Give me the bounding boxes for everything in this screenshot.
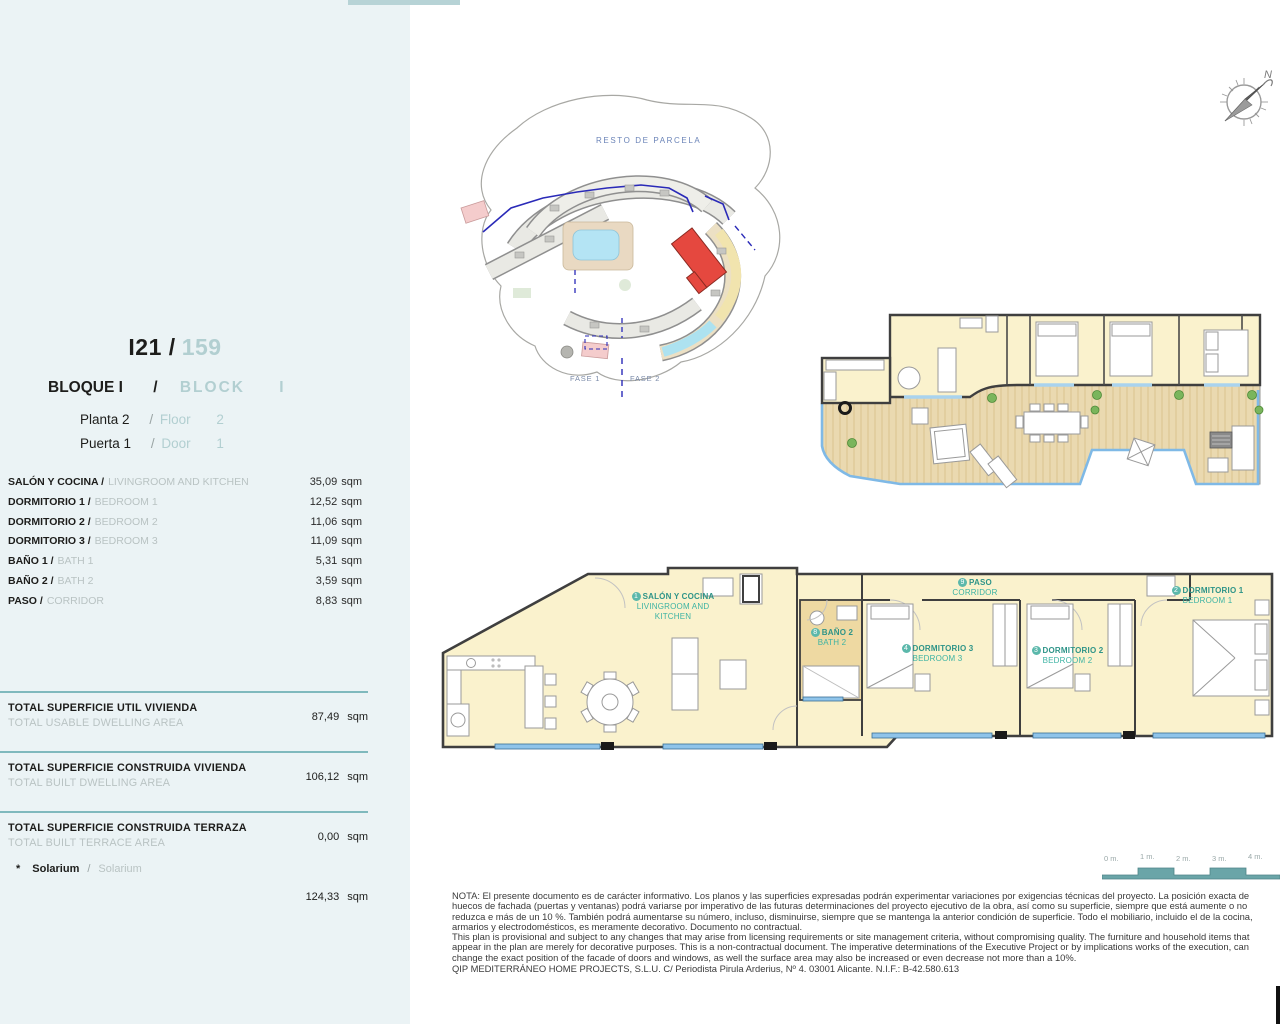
planta-es: Planta 2 xyxy=(80,412,130,427)
block-es: BLOQUE I xyxy=(48,379,123,396)
room-area: 5,31 xyxy=(297,555,337,567)
puerta-es: Puerta 1 xyxy=(80,436,131,451)
room-number-badge: 2 xyxy=(1172,586,1181,595)
scale-bar xyxy=(1102,866,1280,880)
company-info: QIP MEDITERRÁNEO HOME PROJECTS, S.L.U. C… xyxy=(452,964,1280,974)
fase1-label: FASE 1 xyxy=(570,374,600,383)
upper-floor-plan xyxy=(812,300,1272,500)
planta-number: 2 xyxy=(216,412,224,427)
room-unit: sqm xyxy=(341,476,362,488)
block-en-number: I xyxy=(279,379,283,396)
room-es: BAÑO 1 / xyxy=(8,555,54,567)
room-area: 3,59 xyxy=(297,575,337,587)
solarium-slash: / xyxy=(87,863,90,875)
puerta-number: 1 xyxy=(216,436,224,451)
total-area: 0,00 xyxy=(293,831,339,843)
room-unit: sqm xyxy=(341,535,362,547)
unit-code: I21 / xyxy=(128,334,175,360)
resto-de-parcela-label: RESTO DE PARCELA xyxy=(596,136,701,145)
total-unit: sqm xyxy=(347,771,368,783)
total-unit: sqm xyxy=(347,711,368,723)
scale-2m: 2 m. xyxy=(1176,854,1191,863)
room-area-list: SALÓN Y COCINA / LIVINGROOM AND KITCHEN … xyxy=(8,476,362,615)
room-es: DORMITORIO 1 / xyxy=(8,496,91,508)
total-built-area: TOTAL SUPERFICIE CONSTRUIDA VIVIENDA TOT… xyxy=(0,751,368,811)
room-number-badge: 9 xyxy=(958,578,967,587)
room-row-dorm1: DORMITORIO 1 / BEDROOM 1 12,52 sqm xyxy=(8,496,362,516)
scale-0m: 0 m. xyxy=(1104,854,1119,863)
room-row-paso: PASO / CORRIDOR 8,83 sqm xyxy=(8,595,362,615)
room-es: PASO / xyxy=(8,595,43,607)
unit-title: I21 /159 xyxy=(0,334,350,361)
room-row-dorm3: DORMITORIO 3 / BEDROOM 3 11,09 sqm xyxy=(8,535,362,555)
puerta-en: Door xyxy=(161,436,190,451)
room-number-badge: 4 xyxy=(902,644,911,653)
room-row-bath2: BAÑO 2 / BATH 2 3,59 sqm xyxy=(8,575,362,595)
unit-number: 159 xyxy=(182,334,222,360)
room-unit: sqm xyxy=(341,516,362,528)
room-es: BAÑO 2 / xyxy=(8,575,54,587)
total-area: 87,49 xyxy=(293,711,339,723)
label-salon: 1SALÓN Y COCINA LIVINGROOM AND KITCHEN xyxy=(608,592,738,622)
total-area: 106,12 xyxy=(293,771,339,783)
scale-3m: 3 m. xyxy=(1212,854,1227,863)
room-unit: sqm xyxy=(341,496,362,508)
total-terrace-area: TOTAL SUPERFICIE CONSTRUIDA TERRAZA TOTA… xyxy=(0,811,368,918)
room-area: 35,09 xyxy=(297,476,337,488)
room-es: SALÓN Y COCINA / xyxy=(8,476,104,488)
room-en: CORRIDOR xyxy=(47,595,297,607)
label-dorm3: 4DORMITORIO 3 BEDROOM 3 xyxy=(875,644,1000,664)
solarium-en: Solarium xyxy=(98,863,141,875)
room-unit: sqm xyxy=(341,575,362,587)
room-en: BEDROOM 3 xyxy=(95,535,298,547)
label-dorm2: 3DORMITORIO 2 BEDROOM 2 xyxy=(1005,646,1130,666)
solarium-area: 124,33 xyxy=(293,891,339,903)
top-accent-strip xyxy=(348,0,460,5)
room-unit: sqm xyxy=(341,555,362,567)
puerta-slash: / xyxy=(151,436,155,451)
room-area: 12,52 xyxy=(297,496,337,508)
fase2-label: FASE 2 xyxy=(630,374,660,383)
block-slash: / xyxy=(153,379,157,396)
planta-line: Planta 2 / Floor 2 xyxy=(80,412,224,427)
room-en: BATH 2 xyxy=(58,575,298,587)
planta-slash: / xyxy=(149,412,153,427)
legal-disclaimer: NOTA: El presente documento es de caráct… xyxy=(452,891,1280,974)
room-en: BATH 1 xyxy=(58,555,298,567)
compass-rose-icon: N xyxy=(1214,64,1278,132)
room-es: DORMITORIO 2 / xyxy=(8,516,91,528)
room-en: BEDROOM 2 xyxy=(95,516,298,528)
room-es: DORMITORIO 3 / xyxy=(8,535,91,547)
room-area: 11,06 xyxy=(297,516,337,528)
planta-en: Floor xyxy=(160,412,191,427)
label-bano2: 8BAÑO 2 BATH 2 xyxy=(793,628,871,648)
room-row-dorm2: DORMITORIO 2 / BEDROOM 2 11,06 sqm xyxy=(8,516,362,536)
room-number-badge: 8 xyxy=(811,628,820,637)
room-area: 8,83 xyxy=(297,595,337,607)
footer-edge-mark xyxy=(1276,986,1280,1024)
block-en: BLOCK xyxy=(180,379,245,396)
room-row-bath1: BAÑO 1 / BATH 1 5,31 sqm xyxy=(8,555,362,575)
room-row-salon: SALÓN Y COCINA / LIVINGROOM AND KITCHEN … xyxy=(8,476,362,496)
total-unit: sqm xyxy=(347,831,368,843)
disclaimer-en-line: change the exact position of the facade … xyxy=(452,953,1280,963)
floor-plan-document: { "sidebar": { "unit": {"code": "I21 /",… xyxy=(0,0,1280,1024)
room-unit: sqm xyxy=(341,595,362,607)
solarium-star: * xyxy=(16,863,20,875)
site-plan-map xyxy=(455,80,805,405)
solarium-es: Solarium xyxy=(32,863,79,875)
total-usable-area: TOTAL SUPERFICIE UTIL VIVIENDA TOTAL USA… xyxy=(0,691,368,751)
solarium-row: * Solarium / Solarium xyxy=(8,863,368,875)
puerta-line: Puerta 1 / Door 1 xyxy=(80,436,224,451)
label-dorm1: 2DORMITORIO 1 BEDROOM 1 xyxy=(1145,586,1270,606)
scale-1m: 1 m. xyxy=(1140,852,1155,861)
north-label: N xyxy=(1264,69,1272,81)
room-number-badge: 3 xyxy=(1032,646,1041,655)
solarium-unit: sqm xyxy=(347,891,368,903)
block-line: BLOQUE I / BLOCK I xyxy=(48,379,284,397)
room-area: 11,09 xyxy=(297,535,337,547)
label-paso: 9PASO CORRIDOR xyxy=(935,578,1015,598)
room-en: BEDROOM 1 xyxy=(95,496,298,508)
totals-section: TOTAL SUPERFICIE UTIL VIVIENDA TOTAL USA… xyxy=(0,691,368,918)
room-en: LIVINGROOM AND KITCHEN xyxy=(108,476,297,488)
scale-4m: 4 m. xyxy=(1248,852,1263,861)
room-number-badge: 1 xyxy=(632,592,641,601)
